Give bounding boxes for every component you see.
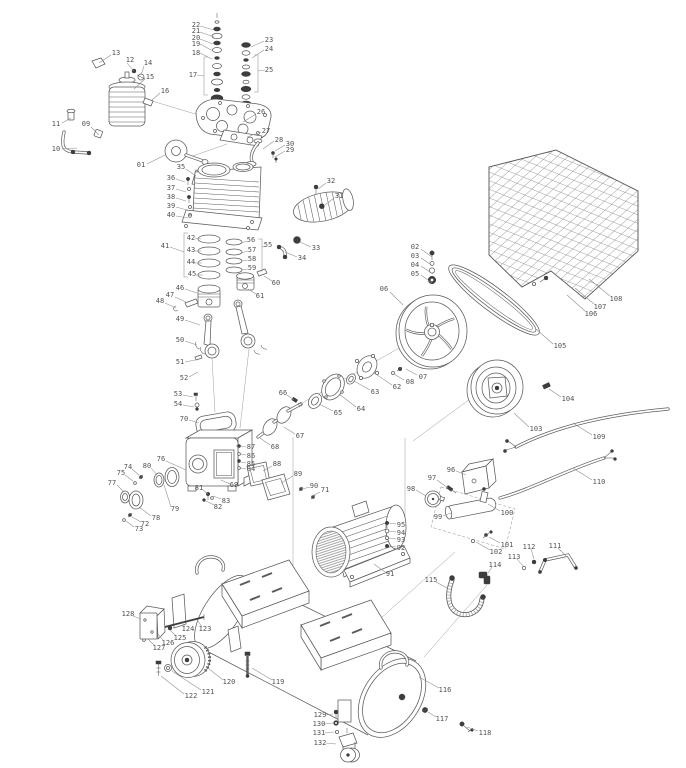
part-number-label-98: 98 <box>407 485 415 493</box>
part-number-label-08: 08 <box>406 378 414 386</box>
part-number-label-50: 50 <box>176 336 184 344</box>
part-number-label-55: 55 <box>264 241 272 249</box>
exploded-parts-diagram: 0102030405060708091011121314151617181920… <box>0 0 686 768</box>
part-number-label-48: 48 <box>156 297 164 305</box>
part-number-label-26: 26 <box>257 108 265 116</box>
part-number-label-20: 20 <box>192 34 200 42</box>
crankcase <box>186 430 252 491</box>
part-number-label-123: 123 <box>199 625 212 633</box>
part-number-label-120: 120 <box>223 678 236 686</box>
part-number-label-14: 14 <box>144 59 152 67</box>
part-number-label-07: 07 <box>419 373 427 381</box>
part-number-label-18: 18 <box>192 49 200 57</box>
part-number-label-61: 61 <box>256 292 264 300</box>
part-number-label-79: 79 <box>171 505 179 513</box>
part-number-label-108: 108 <box>610 295 623 303</box>
part-number-label-97: 97 <box>428 474 436 482</box>
part-number-label-83: 83 <box>222 497 230 505</box>
part-number-label-35: 35 <box>177 163 185 171</box>
part-number-label-37: 37 <box>167 184 175 192</box>
part-number-label-76: 76 <box>157 455 165 463</box>
part-number-label-30: 30 <box>286 140 294 148</box>
part-number-label-24: 24 <box>265 45 273 53</box>
part-number-label-118: 118 <box>479 729 492 737</box>
part-number-label-47: 47 <box>166 291 174 299</box>
part-number-label-41: 41 <box>161 242 169 250</box>
part-number-label-34: 34 <box>298 254 306 262</box>
part-number-label-17: 17 <box>189 71 197 79</box>
part-number-label-16: 16 <box>161 87 169 95</box>
part-number-label-52: 52 <box>180 374 188 382</box>
part-number-label-102: 102 <box>490 548 503 556</box>
accessory-box <box>140 606 165 639</box>
part-number-label-90: 90 <box>310 482 318 490</box>
part-number-label-46: 46 <box>176 284 184 292</box>
part-number-label-109: 109 <box>593 433 606 441</box>
part-number-label-70: 70 <box>180 415 188 423</box>
part-number-label-23: 23 <box>265 36 273 44</box>
part-number-label-119: 119 <box>272 678 285 686</box>
part-number-label-45: 45 <box>188 270 196 278</box>
part-number-label-13: 13 <box>112 49 120 57</box>
part-number-label-38: 38 <box>167 193 175 201</box>
part-number-label-114: 114 <box>489 561 502 569</box>
filter-body <box>109 87 145 126</box>
diagram-canvas: 0102030405060708091011121314151617181920… <box>0 0 686 768</box>
part-number-label-92: 92 <box>397 544 405 552</box>
part-number-label-69: 69 <box>230 481 238 489</box>
part-number-label-03: 03 <box>411 252 419 260</box>
part-number-label-75: 75 <box>117 469 125 477</box>
part-number-label-43: 43 <box>187 246 195 254</box>
part-number-label-94: 94 <box>397 529 405 537</box>
part-number-label-86: 86 <box>247 452 255 460</box>
part-number-label-89: 89 <box>294 470 302 478</box>
part-number-label-132: 132 <box>314 739 327 747</box>
part-number-label-04: 04 <box>411 261 419 269</box>
valve-stack-right <box>241 43 252 108</box>
part-number-label-85: 85 <box>247 460 255 468</box>
part-number-label-100: 100 <box>501 509 514 517</box>
part-number-label-125: 125 <box>174 634 187 642</box>
part-number-label-124: 124 <box>182 625 195 633</box>
tank-port <box>399 694 405 700</box>
tank-leg <box>338 700 351 722</box>
part-number-label-59: 59 <box>248 264 256 272</box>
part-number-label-10: 10 <box>52 145 60 153</box>
part-number-label-101: 101 <box>501 541 514 549</box>
part-number-label-58: 58 <box>248 255 256 263</box>
part-number-label-49: 49 <box>176 315 184 323</box>
part-number-label-54: 54 <box>174 400 182 408</box>
part-number-label-78: 78 <box>152 514 160 522</box>
part-number-label-127: 127 <box>153 644 166 652</box>
part-number-label-73: 73 <box>135 525 143 533</box>
part-number-label-103: 103 <box>530 425 543 433</box>
part-number-label-106: 106 <box>585 310 598 318</box>
part-number-label-96: 96 <box>447 466 455 474</box>
part-number-label-02: 02 <box>411 243 419 251</box>
part-number-label-113: 113 <box>508 553 521 561</box>
part-number-label-88: 88 <box>273 460 281 468</box>
part-number-label-22: 22 <box>192 21 200 29</box>
piston-large <box>198 285 220 307</box>
part-number-label-107: 107 <box>594 303 607 311</box>
part-number-label-112: 112 <box>523 543 536 551</box>
part-number-label-42: 42 <box>187 234 195 242</box>
part-number-label-116: 116 <box>439 686 452 694</box>
part-number-label-115: 115 <box>425 576 438 584</box>
part-number-label-33: 33 <box>312 244 320 252</box>
part-number-label-87: 87 <box>247 443 255 451</box>
part-number-label-28: 28 <box>275 136 283 144</box>
part-number-label-81: 81 <box>195 484 203 492</box>
part-number-label-25: 25 <box>265 66 273 74</box>
part-number-label-66: 66 <box>279 389 287 397</box>
part-number-label-60: 60 <box>272 279 280 287</box>
part-number-label-95: 95 <box>397 521 405 529</box>
part-number-label-117: 117 <box>436 715 449 723</box>
part-number-label-131: 131 <box>313 729 326 737</box>
part-number-label-77: 77 <box>108 479 116 487</box>
part-number-label-09: 09 <box>82 120 90 128</box>
part-number-label-93: 93 <box>397 536 405 544</box>
part-number-label-104: 104 <box>562 395 575 403</box>
part-number-label-68: 68 <box>271 443 279 451</box>
part-number-label-80: 80 <box>143 462 151 470</box>
part-number-label-53: 53 <box>174 390 182 398</box>
part-number-label-121: 121 <box>202 688 215 696</box>
piston-small <box>237 273 255 290</box>
part-number-label-11: 11 <box>52 120 60 128</box>
part-number-label-51: 51 <box>176 358 184 366</box>
part-number-label-56: 56 <box>247 236 255 244</box>
part-number-label-129: 129 <box>314 711 327 719</box>
part-number-label-36: 36 <box>167 174 175 182</box>
part-number-label-01: 01 <box>137 161 145 169</box>
part-number-label-27: 27 <box>262 127 270 135</box>
wheel <box>171 642 210 678</box>
part-number-label-71: 71 <box>321 486 329 494</box>
part-number-label-31: 31 <box>335 192 343 200</box>
part-number-label-05: 05 <box>411 270 419 278</box>
part-number-label-64: 64 <box>357 405 365 413</box>
part-number-label-130: 130 <box>313 720 326 728</box>
part-number-label-63: 63 <box>371 388 379 396</box>
part-number-label-57: 57 <box>248 246 256 254</box>
part-number-label-91: 91 <box>386 570 394 578</box>
part-number-label-62: 62 <box>393 383 401 391</box>
part-number-label-65: 65 <box>334 409 342 417</box>
part-number-label-39: 39 <box>167 202 175 210</box>
part-number-label-40: 40 <box>167 211 175 219</box>
part-number-label-32: 32 <box>327 177 335 185</box>
part-number-label-67: 67 <box>296 432 304 440</box>
part-number-label-06: 06 <box>380 285 388 293</box>
part-number-label-15: 15 <box>146 73 154 81</box>
part-number-label-110: 110 <box>593 478 606 486</box>
part-number-label-99: 99 <box>434 513 442 521</box>
part-number-label-111: 111 <box>549 542 562 550</box>
part-number-label-44: 44 <box>187 258 195 266</box>
part-number-label-122: 122 <box>185 692 198 700</box>
part-number-label-12: 12 <box>126 56 134 64</box>
part-number-label-105: 105 <box>554 342 567 350</box>
motor-fan-grille <box>316 531 346 573</box>
tank-plug <box>422 707 428 712</box>
part-number-label-128: 128 <box>122 610 135 618</box>
